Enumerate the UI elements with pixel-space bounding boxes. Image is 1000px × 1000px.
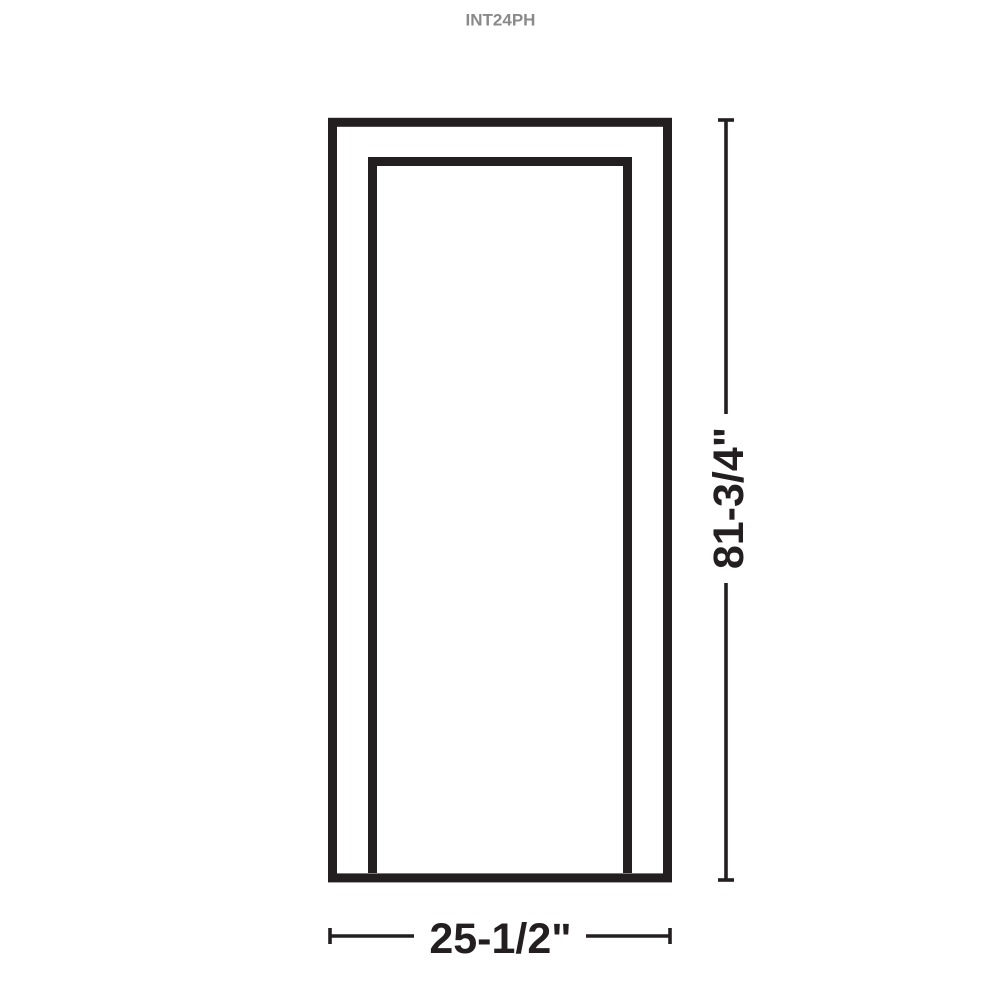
svg-text:INT24PH: INT24PH (466, 11, 536, 30)
svg-text:25-1/2": 25-1/2" (429, 915, 571, 963)
svg-text:81-3/4": 81-3/4" (705, 427, 753, 569)
